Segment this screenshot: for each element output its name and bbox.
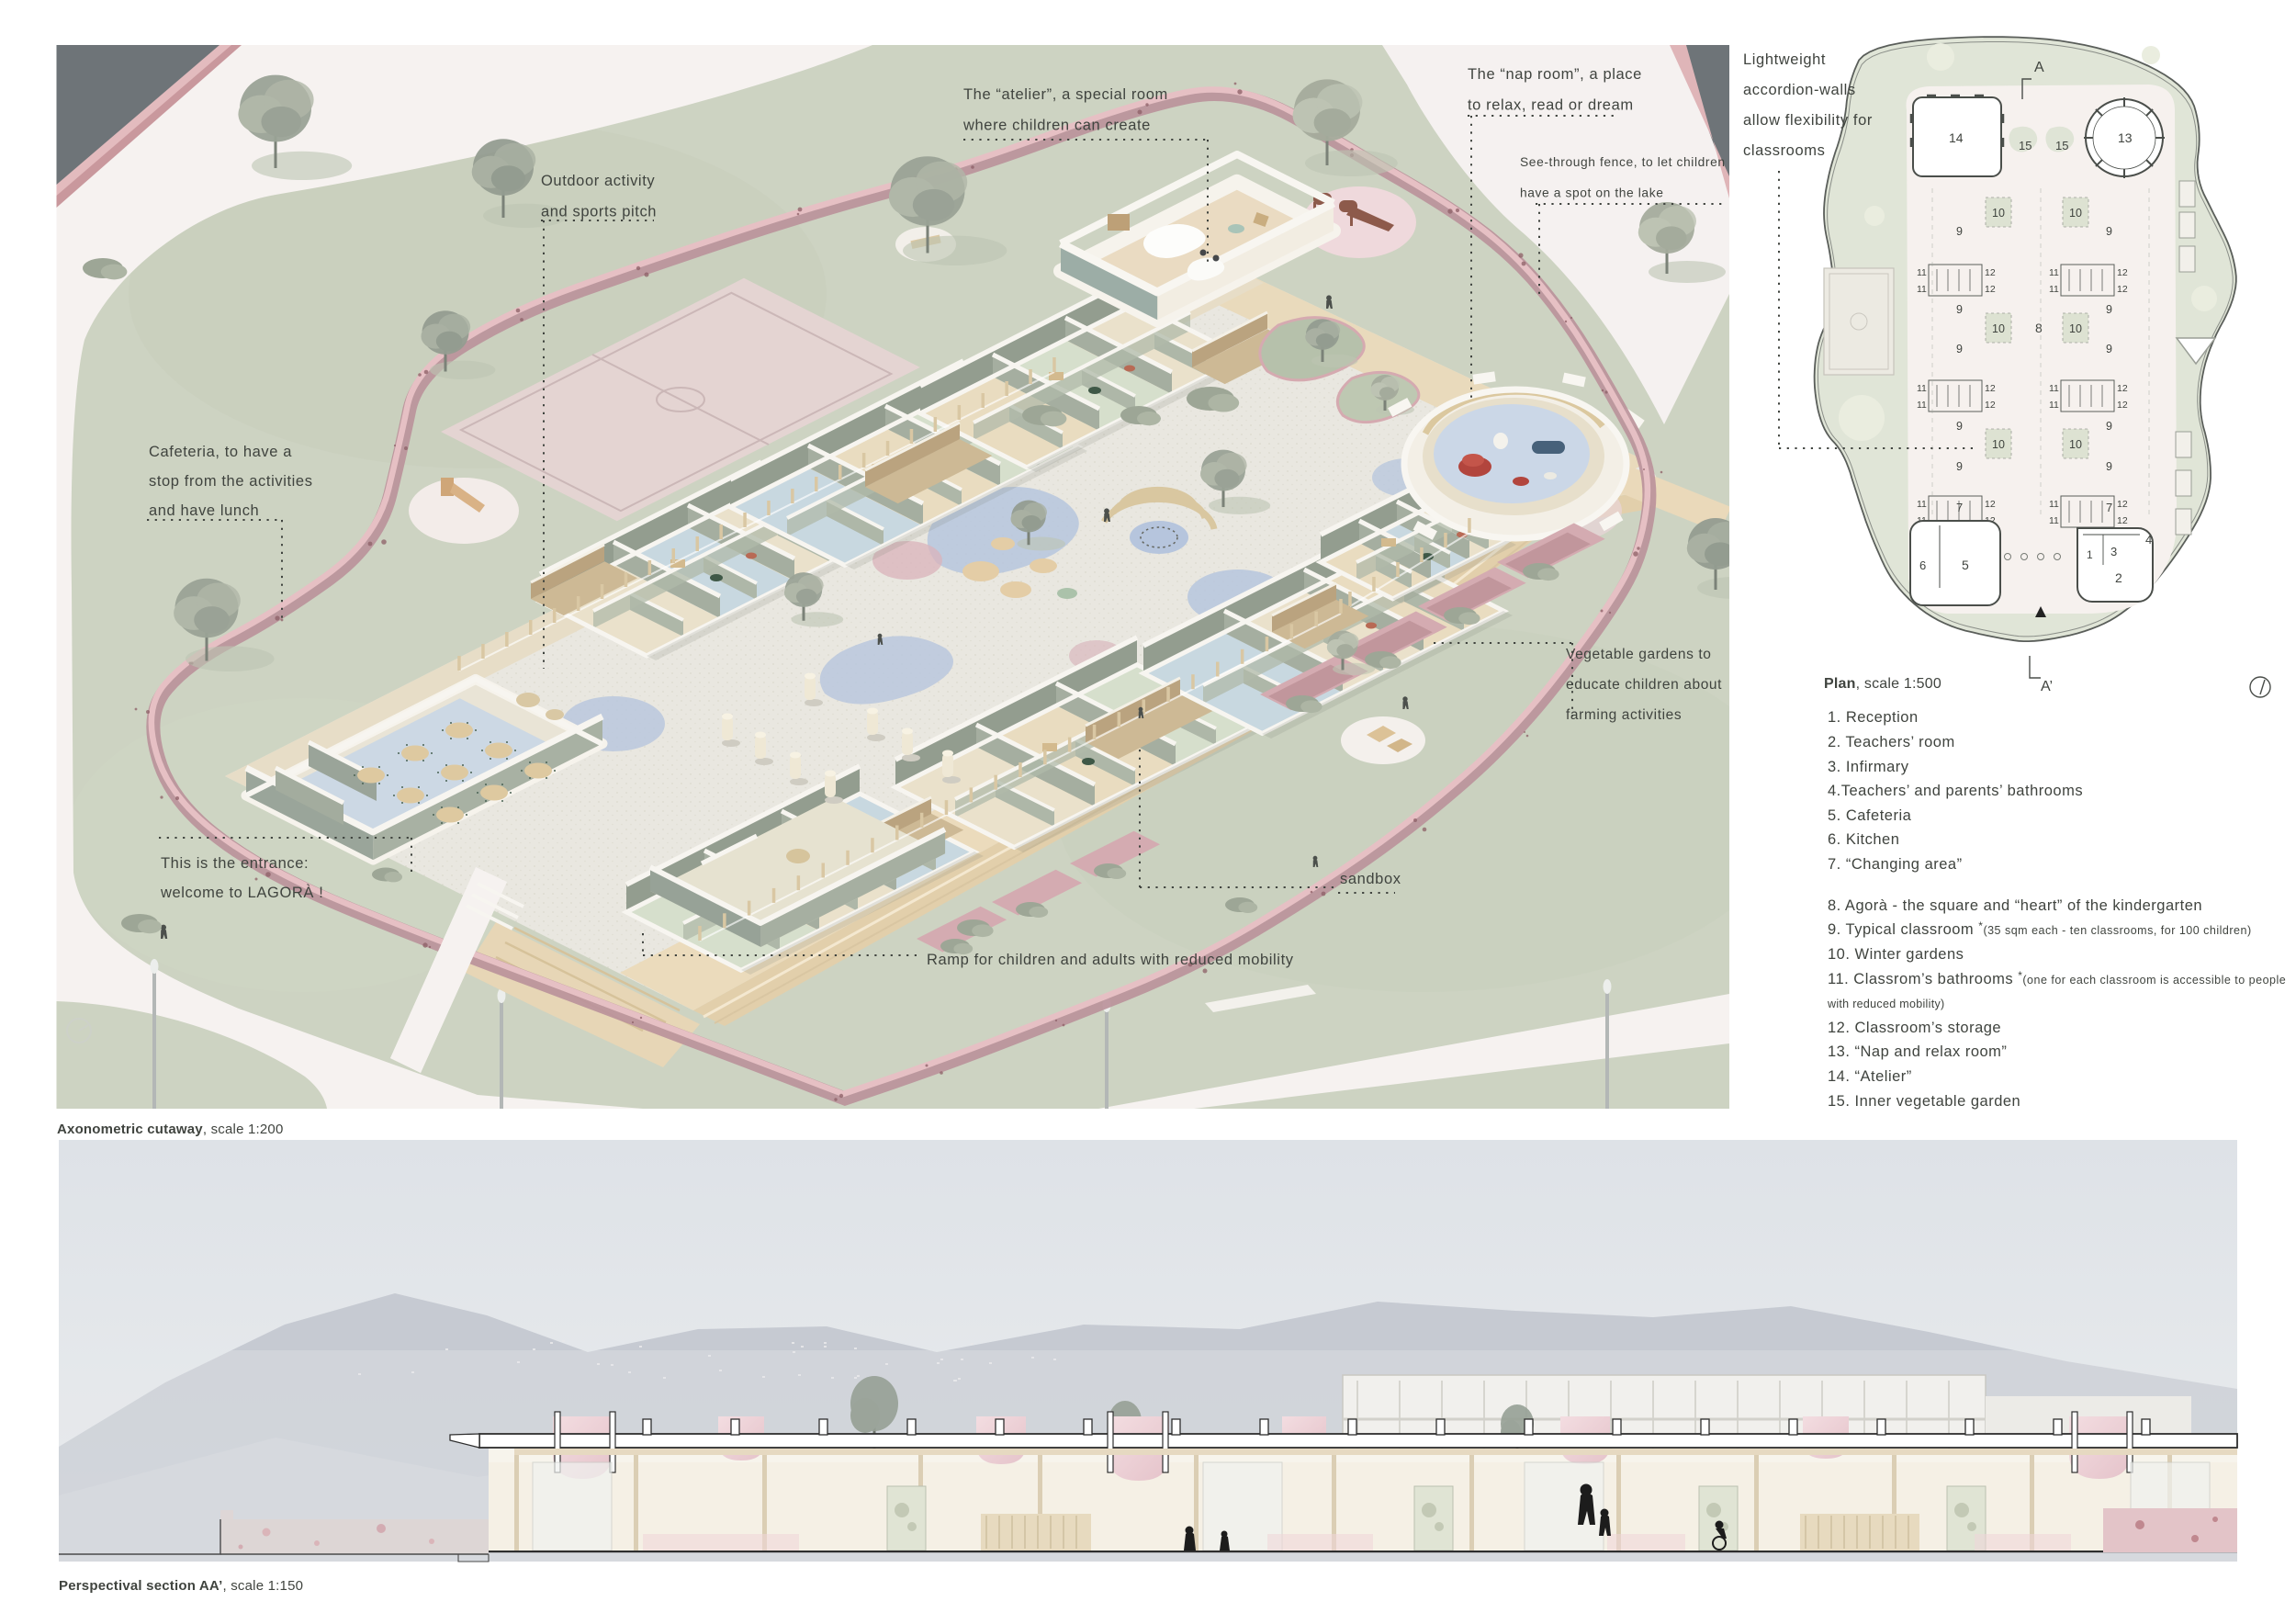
svg-text:classrooms: classrooms [1743,142,1825,159]
svg-text:12: 12 [2117,400,2128,411]
svg-text:11: 11 [1917,267,1927,278]
svg-text:4: 4 [2145,533,2152,547]
svg-text:11: 11 [2049,400,2059,411]
svg-text:3. Infirmary: 3. Infirmary [1828,759,1909,775]
svg-text:The “atelier”, a special room: The “atelier”, a special room [963,86,1168,103]
svg-text:12: 12 [1985,267,1996,278]
svg-text:Outdoor activity: Outdoor activity [541,173,655,189]
svg-text:14: 14 [1949,130,1964,145]
svg-text:Perspectival section AA’, scal: Perspectival section AA’, scale 1:150 [59,1578,303,1594]
svg-text:10: 10 [2069,438,2082,451]
svg-text:11: 11 [2049,267,2059,278]
svg-text:10. Winter gardens: 10. Winter gardens [1828,946,1964,963]
svg-text:Ramp for children and adults w: Ramp for children and adults with reduce… [927,952,1294,968]
svg-text:A’: A’ [2041,679,2053,694]
svg-text:11: 11 [2049,515,2059,526]
svg-text:11: 11 [2049,383,2059,394]
svg-text:12. Classroom’s storage: 12. Classroom’s storage [1828,1020,2001,1036]
svg-text:9: 9 [2106,460,2112,473]
svg-text:allow flexibility for: allow flexibility for [1743,112,1873,129]
svg-text:12: 12 [2117,383,2128,394]
svg-text:11: 11 [2049,499,2059,510]
svg-text:15: 15 [2055,139,2068,152]
svg-text:10: 10 [2069,207,2082,220]
svg-text:9: 9 [1956,460,1963,473]
svg-text:10: 10 [1992,207,2005,220]
svg-text:12: 12 [2117,284,2128,295]
svg-text:7: 7 [2106,501,2112,514]
svg-text:11: 11 [1917,499,1927,510]
svg-text:7. “Changing area”: 7. “Changing area” [1828,856,1963,873]
svg-text:See-through fence, to let chil: See-through fence, to let children [1520,155,1726,169]
svg-text:11: 11 [2049,284,2059,295]
svg-text:9: 9 [1956,343,1963,355]
svg-text:10: 10 [1992,438,2005,451]
svg-text:6. Kitchen: 6. Kitchen [1828,831,1899,848]
svg-text:8: 8 [2035,321,2043,335]
svg-text:3: 3 [2110,545,2117,558]
svg-text:2. Teachers’ room: 2. Teachers’ room [1828,734,1955,750]
svg-text:9: 9 [1956,420,1963,433]
svg-text:where children can create: where children can create [962,118,1151,134]
svg-text:12: 12 [2117,267,2128,278]
svg-text:9: 9 [2106,420,2112,433]
svg-text:The “nap room”, a place: The “nap room”, a place [1468,66,1642,83]
svg-text:5: 5 [1962,558,1969,572]
svg-text:15. Inner vegetable garden: 15. Inner vegetable garden [1828,1093,2020,1110]
svg-text:sandbox: sandbox [1340,871,1401,887]
svg-text:accordion-walls: accordion-walls [1743,82,1856,98]
svg-text:and sports pitch: and sports pitch [541,204,657,220]
svg-text:9: 9 [2106,303,2112,316]
svg-text:12: 12 [2117,515,2128,526]
svg-text:A: A [2034,60,2044,75]
svg-text:9: 9 [1956,225,1963,238]
svg-text:11: 11 [1917,284,1927,295]
svg-text:with reduced mobility): with reduced mobility) [1827,998,1944,1010]
svg-text:4.Teachers’ and parents’ bathr: 4.Teachers’ and parents’ bathrooms [1828,783,2083,799]
svg-text:14. “Atelier”: 14. “Atelier” [1828,1068,1912,1085]
svg-text:Plan, scale 1:500: Plan, scale 1:500 [1824,676,1941,692]
svg-text:12: 12 [1985,383,1996,394]
svg-text:welcome to LAGORÀ !: welcome to LAGORÀ ! [160,884,323,901]
svg-text:12: 12 [2117,499,2128,510]
svg-text:This is the entrance:: This is the entrance: [161,855,309,872]
svg-text:12: 12 [1985,284,1996,295]
svg-text:9: 9 [2106,343,2112,355]
svg-text:to relax, read or dream: to relax, read or dream [1468,97,1634,114]
svg-text:9: 9 [1956,303,1963,316]
svg-text:educate children about: educate children about [1566,677,1722,693]
svg-text:Lightweight: Lightweight [1743,51,1826,68]
svg-text:15: 15 [2019,139,2032,152]
svg-text:6: 6 [1919,558,1926,572]
svg-text:12: 12 [1985,400,1996,411]
svg-text:1. Reception: 1. Reception [1828,709,1919,726]
svg-text:13. “Nap and relax room”: 13. “Nap and relax room” [1828,1043,2007,1060]
svg-text:Axonometric cutaway, scale 1:2: Axonometric cutaway, scale 1:200 [57,1122,284,1137]
svg-text:stop from the activities: stop from the activities [149,473,313,490]
svg-text:2: 2 [2115,570,2122,585]
svg-text:9: 9 [2106,225,2112,238]
svg-text:10: 10 [1992,322,2005,335]
svg-text:and have lunch: and have lunch [149,502,259,519]
svg-text:8. Agorà - the square and “hea: 8. Agorà - the square and “heart” of the… [1828,897,2202,914]
svg-text:12: 12 [1985,499,1996,510]
svg-text:farming activities: farming activities [1566,707,1682,723]
svg-text:5. Cafeteria: 5. Cafeteria [1828,807,1912,824]
svg-text:13: 13 [2118,130,2133,145]
svg-text:have a spot on the lake: have a spot on the lake [1520,186,1663,200]
svg-text:Vegetable gardens to: Vegetable gardens to [1566,647,1712,662]
svg-text:10: 10 [2069,322,2082,335]
svg-text:1: 1 [2087,548,2093,561]
svg-text:11: 11 [1917,383,1927,394]
svg-text:Cafeteria, to have a: Cafeteria, to have a [149,444,292,460]
svg-text:7: 7 [1956,501,1963,514]
svg-text:11: 11 [1917,400,1927,411]
